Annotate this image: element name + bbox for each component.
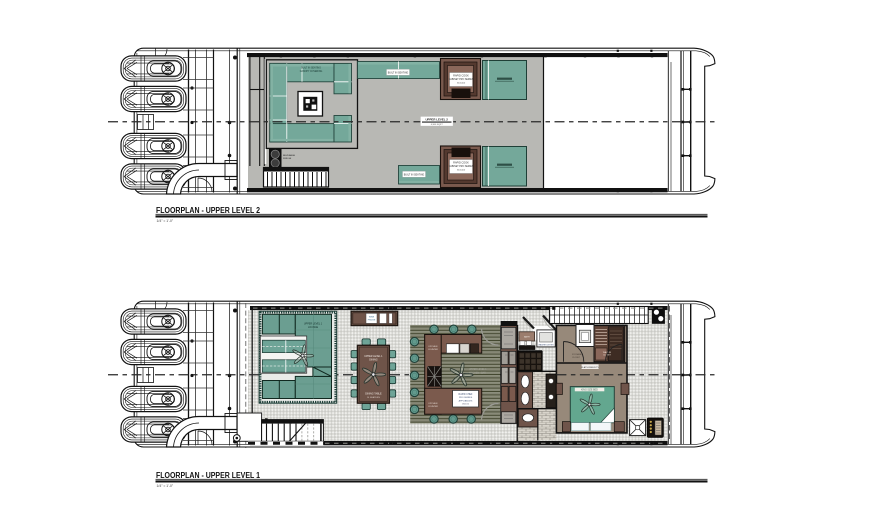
svg-text:LOUNGE: LOUNGE (308, 326, 319, 329)
svg-text:CABINET PRO SERIES: CABINET PRO SERIES (449, 78, 474, 81)
svg-text:DINING: DINING (369, 358, 378, 361)
svg-text:FLOORPLAN - UPPER LEVEL 1: FLOORPLAN - UPPER LEVEL 1 (156, 471, 261, 480)
svg-text:BUILT IN SEATING: BUILT IN SEATING (301, 67, 321, 70)
svg-text:48dbwfd: 48dbwfd (462, 404, 469, 406)
svg-text:RAPID COOK: RAPID COOK (453, 75, 469, 78)
svg-text:KITCHEN: KITCHEN (429, 403, 438, 405)
svg-text:WINE: WINE (369, 317, 375, 319)
svg-text:14 SEATERS: 14 SEATERS (367, 396, 381, 399)
svg-text:4,300 SQFT: 4,300 SQFT (431, 124, 444, 126)
svg-text:1/4" = 1'-0": 1/4" = 1'-0" (157, 484, 174, 488)
svg-text:KING SIZE BED: KING SIZE BED (581, 390, 598, 392)
svg-text:UPPER LEVEL 2: UPPER LEVEL 2 (425, 118, 448, 122)
svg-text:CLOSET: CLOSET (572, 357, 581, 359)
svg-text:CLOSET: CLOSET (603, 355, 612, 357)
svg-text:CABINET PRO SERIES: CABINET PRO SERIES (449, 165, 474, 168)
svg-text:COUNTER: COUNTER (428, 406, 438, 408)
svg-text:KITCHEN: KITCHEN (429, 346, 438, 348)
svg-text:FLOORPLAN - UPPER LEVEL 2: FLOORPLAN - UPPER LEVEL 2 (156, 206, 261, 215)
svg-text:1/4" = 1'-0": 1/4" = 1'-0" (157, 219, 174, 223)
svg-text:PRO SERIES: PRO SERIES (459, 397, 473, 399)
svg-text:RAPID COOK: RAPID COOK (453, 162, 469, 165)
svg-text:WASHER DRYER: WASHER DRYER (538, 343, 554, 346)
svg-text:FRIDGE: FRIDGE (283, 158, 292, 160)
svg-text:FLATSCREEN TV: FLATSCREEN TV (581, 366, 599, 369)
svg-text:STORAGE: STORAGE (572, 353, 582, 356)
svg-text:COUNTER: COUNTER (428, 349, 438, 351)
svg-text:BATH: BATH (524, 336, 530, 339)
svg-text:BUILT IN SEATING: BUILT IN SEATING (404, 174, 425, 177)
svg-text:CANOPY COVERING: CANOPY COVERING (300, 70, 323, 73)
svg-text:FRIDGE: FRIDGE (368, 319, 376, 321)
svg-text:UPPER LEVEL 1: UPPER LEVEL 1 (469, 369, 487, 371)
svg-text:DINING TABLE: DINING TABLE (365, 393, 382, 396)
svg-text:30cbdwb: 30cbdwb (457, 169, 466, 171)
svg-text:BEVERAGE: BEVERAGE (283, 154, 296, 157)
svg-text:KITCHEN · BAR: KITCHEN · BAR (469, 372, 486, 375)
svg-text:RAPID CHEF: RAPID CHEF (459, 393, 474, 396)
svg-text:30cbdwb: 30cbdwb (457, 82, 466, 84)
svg-text:APPLIANCES: APPLIANCES (459, 399, 473, 402)
svg-text:BUILT IN SEATING: BUILT IN SEATING (388, 72, 409, 75)
